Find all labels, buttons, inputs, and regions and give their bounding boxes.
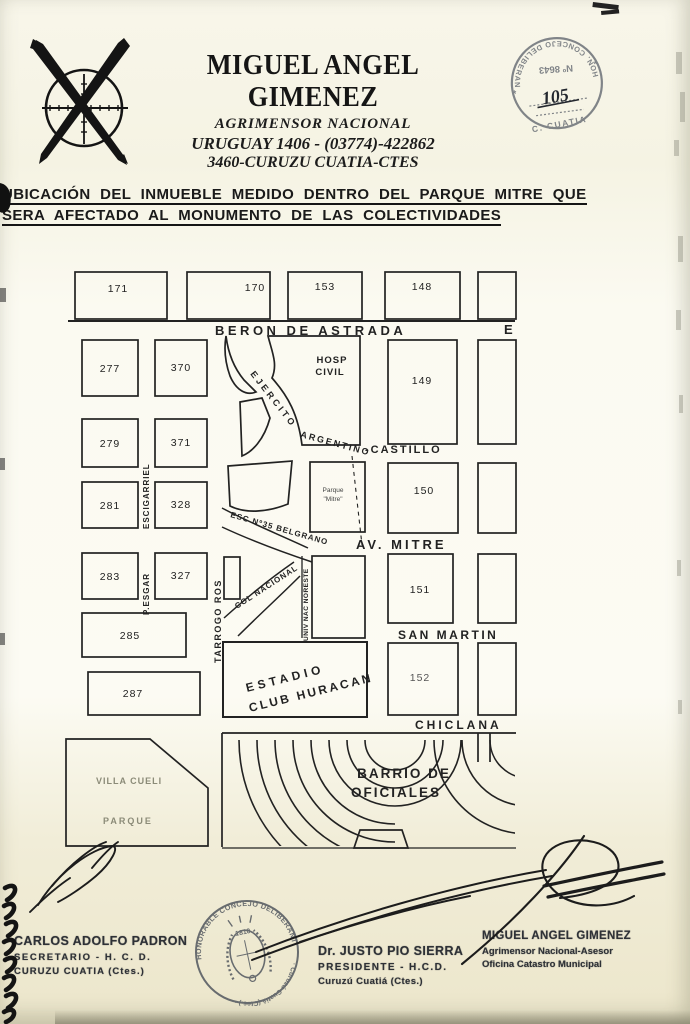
surveyor-signature xyxy=(462,836,664,964)
scan-artifacts xyxy=(0,2,685,714)
spiral-binding xyxy=(4,886,16,1022)
signatures-and-scan-artifacts xyxy=(0,0,690,1024)
scan-bottom-shadow xyxy=(55,1010,690,1024)
scanned-document-page: MIGUEL ANGEL GIMENEZ AGRIMENSOR NACIONAL… xyxy=(0,0,690,1024)
secretary-signature xyxy=(30,842,118,912)
president-signature xyxy=(252,870,552,960)
